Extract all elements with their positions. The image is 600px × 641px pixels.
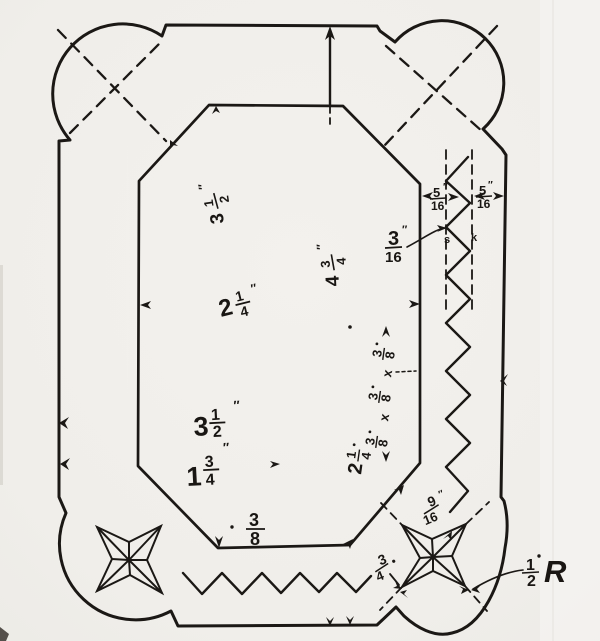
svg-text:″: ″ [402, 224, 408, 236]
svg-text:3: 3 [249, 510, 259, 530]
svg-text:3: 3 [318, 260, 333, 268]
svg-text:16: 16 [477, 197, 491, 211]
svg-text:R: R [544, 554, 567, 589]
svg-text:″: ″ [223, 440, 230, 455]
svg-text:4: 4 [322, 275, 344, 287]
svg-text:3: 3 [204, 454, 214, 471]
svg-text:″: ″ [233, 398, 240, 413]
svg-text:3: 3 [193, 411, 210, 442]
svg-text:16: 16 [431, 199, 445, 213]
svg-text:16: 16 [385, 249, 402, 266]
svg-text:1: 1 [526, 557, 535, 574]
svg-text:1: 1 [211, 407, 221, 424]
svg-text:1: 1 [186, 461, 203, 492]
svg-text:k: k [471, 232, 478, 244]
svg-text:8: 8 [250, 529, 260, 549]
svg-text:″: ″ [314, 244, 328, 251]
svg-text:″: ″ [488, 180, 493, 191]
svg-text:2: 2 [527, 573, 536, 590]
svg-text:″: ″ [443, 182, 448, 193]
svg-text:s: s [444, 234, 450, 246]
svg-text:2: 2 [212, 424, 222, 441]
svg-text:4: 4 [205, 472, 215, 489]
